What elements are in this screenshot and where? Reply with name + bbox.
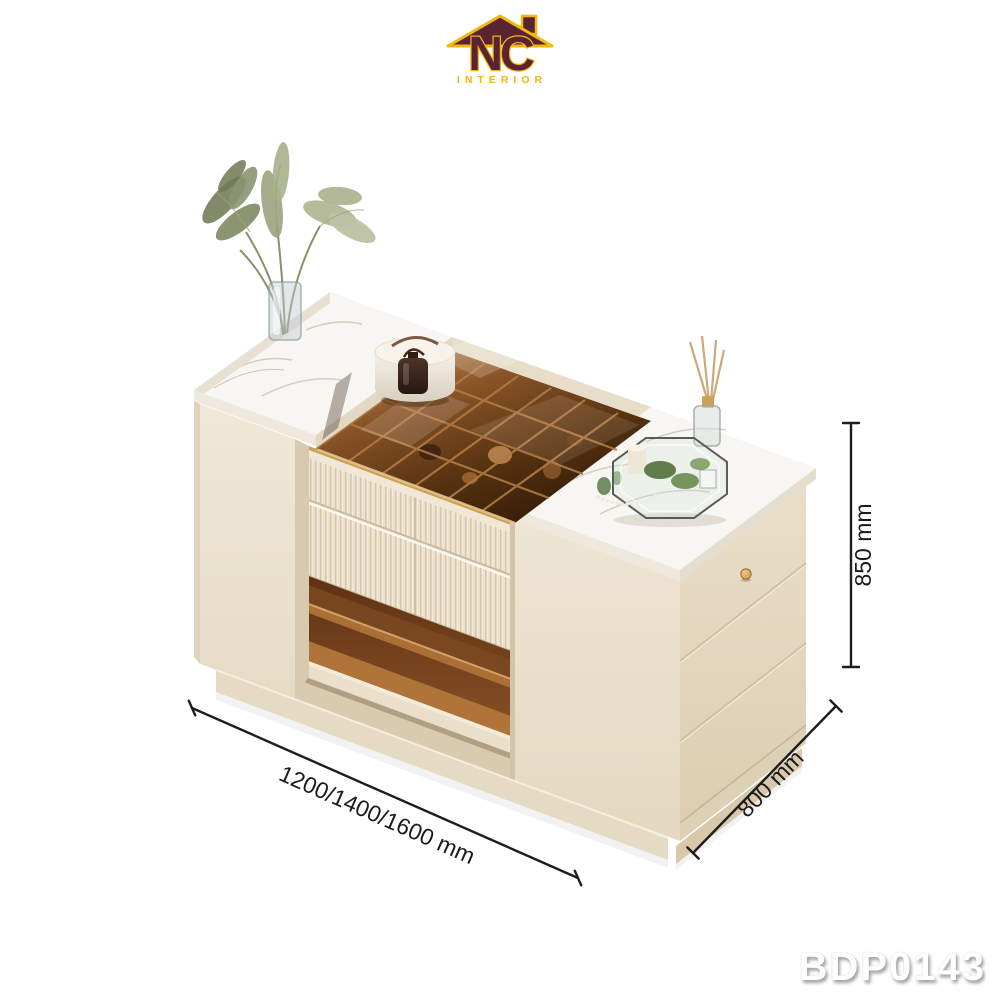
height-label: 850 mm [850,503,876,586]
greenery-2 [671,473,699,489]
logo-name: INTERIOR [457,74,547,86]
round-jewelry-box [375,337,455,407]
bottle-highlight [403,363,409,385]
reed-diffuser [690,336,724,446]
diffuser-reeds [690,336,724,404]
plume-left [196,156,266,246]
plume-center [257,141,291,239]
left-cabinet-front [200,404,295,699]
greenery-1 [644,461,676,479]
right-return-edge [510,518,515,780]
greenery-3 [690,458,710,470]
left-cabinet [194,401,309,699]
scene-canvas: NC INTERIOR [0,0,1000,1000]
green-bottle [597,477,611,495]
perfume-bottle [398,358,428,394]
candle-top [628,445,646,452]
brand-logo: NC INTERIOR [448,16,552,86]
left-return-edge [295,439,309,699]
drawer-knob-2 [741,569,751,579]
left-cabinet-edge [194,401,200,664]
candle [628,448,646,474]
glass-cup [700,470,716,488]
product-code: BDP0143 [799,945,986,990]
product-dimension-image: NC INTERIOR [0,0,1000,1000]
vase-highlight [273,287,280,335]
